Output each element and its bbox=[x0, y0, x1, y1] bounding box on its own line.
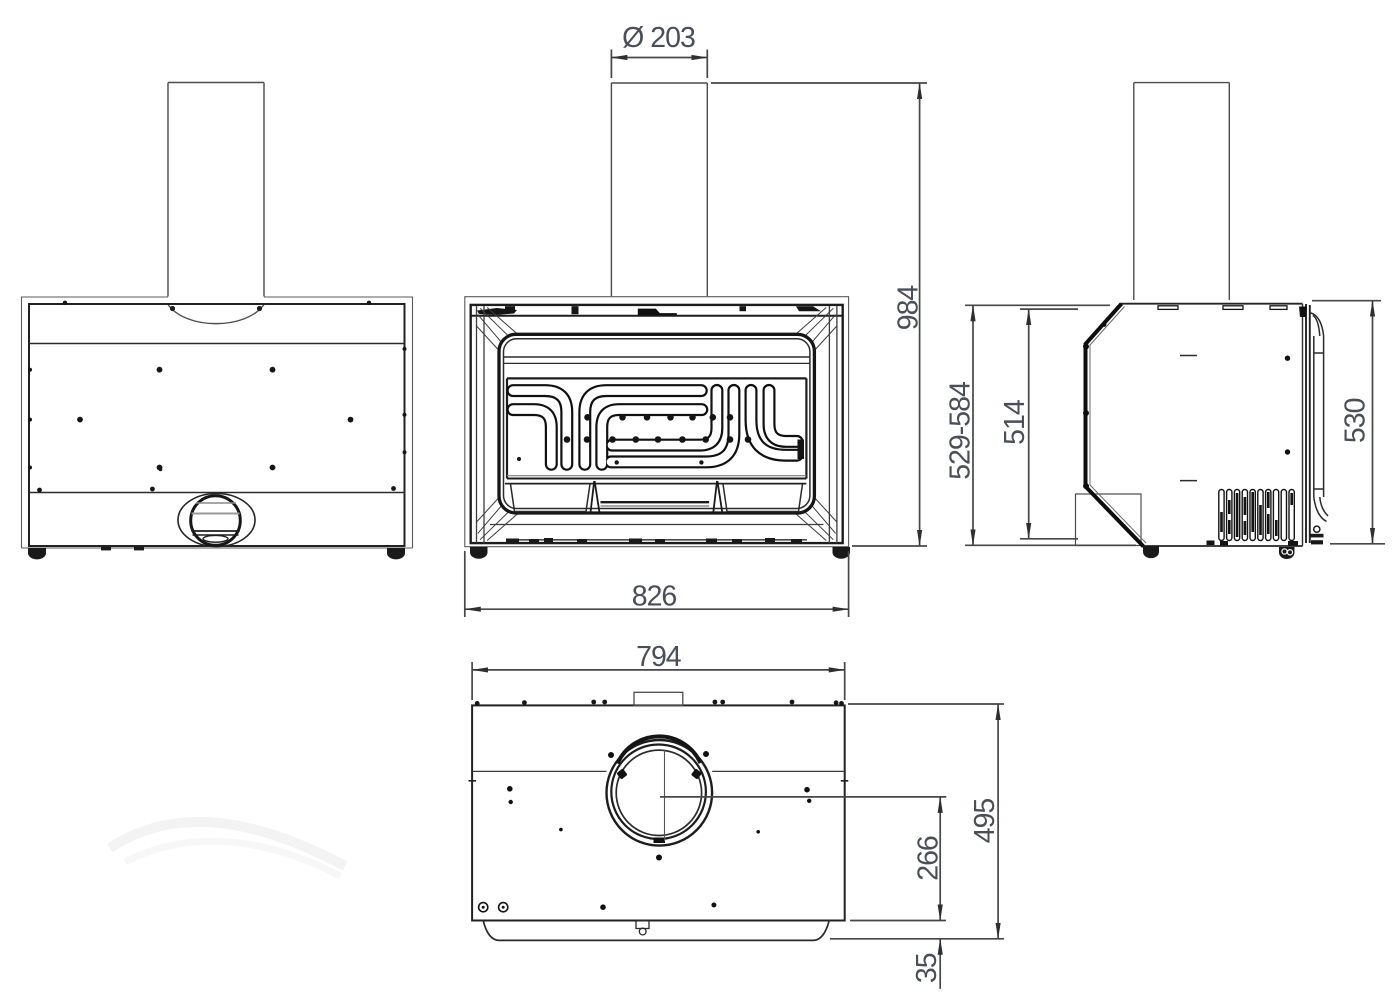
svg-text:794: 794 bbox=[636, 641, 682, 673]
svg-text:35: 35 bbox=[911, 953, 943, 983]
svg-text:826: 826 bbox=[632, 581, 677, 613]
svg-text:495: 495 bbox=[969, 799, 1001, 844]
svg-text:266: 266 bbox=[913, 836, 945, 881]
svg-text:514: 514 bbox=[999, 399, 1031, 445]
svg-text:Ø 203: Ø 203 bbox=[622, 22, 695, 54]
svg-text:530: 530 bbox=[1340, 398, 1372, 443]
svg-text:984: 984 bbox=[893, 285, 925, 331]
svg-text:529-584: 529-584 bbox=[945, 381, 977, 480]
